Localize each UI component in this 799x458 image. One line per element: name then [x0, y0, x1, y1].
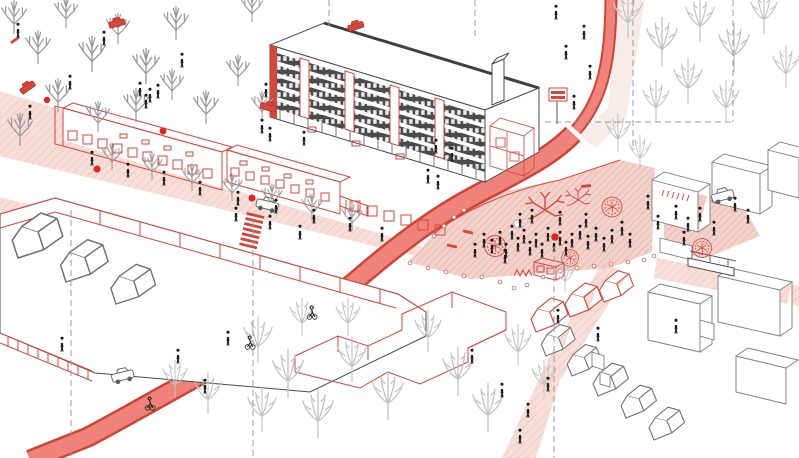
bollard — [498, 280, 502, 284]
bollard — [462, 274, 466, 278]
leafy-tree — [713, 80, 739, 122]
axonometric-illustration — [0, 0, 799, 458]
illustration-canvas — [0, 0, 799, 458]
pavilion-1-shopfronts-part — [68, 131, 77, 140]
person — [264, 83, 267, 98]
bollard — [426, 266, 430, 270]
person — [596, 327, 599, 342]
red-car — [346, 19, 364, 32]
leafy-tree — [751, 0, 777, 34]
pavilion-2-shopfronts-part — [284, 174, 291, 178]
pavilion-1-shopfronts-part — [98, 139, 107, 148]
pavilion-1-shopfronts-part — [186, 152, 193, 156]
person — [180, 53, 183, 68]
person — [470, 349, 473, 364]
pavilion-2-shopfronts-part — [262, 167, 269, 171]
person — [564, 45, 567, 60]
slab-red-balconies-part — [390, 85, 399, 146]
pavilion-2-shopfronts-part — [306, 180, 313, 184]
red-sign-part — [551, 96, 565, 99]
bollard — [592, 264, 596, 268]
bollard — [652, 254, 656, 258]
pavilion-2-shopfronts-part — [291, 185, 299, 193]
house — [617, 382, 659, 418]
bollard — [462, 208, 466, 212]
leafy-tree — [647, 17, 678, 66]
marker-dot — [44, 97, 50, 103]
leafy-tree — [505, 324, 531, 366]
bollard — [512, 286, 516, 290]
bollard — [444, 270, 448, 274]
person — [554, 5, 557, 20]
leafy-tree — [719, 23, 750, 72]
bare-tree — [54, 0, 77, 28]
pergola-frames-part — [401, 215, 411, 225]
bollard — [541, 275, 545, 279]
southeast-blocks-part — [700, 320, 714, 340]
leafy-tree — [303, 389, 334, 438]
pavilion-2-shopfronts-part — [321, 193, 329, 201]
southeast-blocks — [648, 268, 798, 404]
pavilion-1-shopfronts-part — [142, 140, 149, 144]
leafy-tree — [248, 387, 277, 433]
house — [645, 404, 687, 440]
bare-tree — [1, 0, 26, 34]
pavilion-2-shopfronts-part — [276, 180, 284, 188]
pavilion-1-shopfronts-part — [83, 135, 92, 144]
bollard — [452, 215, 456, 219]
bare-tree — [86, 101, 109, 132]
marker-dot — [94, 166, 101, 173]
pavilion-2-shopfronts-part — [240, 161, 247, 165]
bollard — [408, 261, 412, 265]
bare-tree — [79, 36, 106, 72]
leafy-tree — [773, 46, 799, 88]
pavilion-1-shopfronts-part — [173, 160, 182, 169]
slab-red-balconies-part — [345, 71, 354, 132]
bollard — [525, 283, 529, 287]
marker-dot — [249, 195, 256, 202]
pavilion-1-shopfronts-part — [120, 134, 127, 138]
pavilion-1-shopfronts-part — [164, 146, 171, 150]
bare-tree — [241, 0, 263, 22]
bollard — [480, 275, 484, 279]
leafy-tree — [473, 383, 504, 432]
leafy-tree — [674, 59, 703, 105]
person — [102, 31, 105, 46]
red-car — [18, 78, 36, 94]
person — [16, 23, 19, 38]
slab-chimney-part — [492, 59, 504, 105]
slab-red-balconies-part — [300, 58, 309, 119]
pavilion-1-shopfronts-part — [128, 148, 137, 157]
leafy-tree — [643, 80, 669, 122]
bare-tree — [163, 6, 188, 40]
northeast-blocks-part — [768, 142, 799, 198]
pergola-frames-part — [384, 211, 394, 221]
marker-dot — [551, 233, 559, 241]
bollard — [626, 260, 630, 264]
bollard — [432, 234, 436, 238]
bollard — [575, 266, 579, 270]
leafy-tree — [686, 0, 715, 42]
bollard — [609, 262, 613, 266]
bollard — [442, 224, 446, 228]
pavilion-2-shopfronts-part — [246, 172, 254, 180]
red-car — [108, 16, 126, 28]
bollard — [642, 258, 646, 262]
southeast-blocks-part — [736, 348, 798, 404]
marker-dot — [160, 128, 167, 135]
red-sign-part — [551, 91, 565, 94]
southeast-blocks-part — [648, 284, 712, 352]
pavilion-2-shopfronts-part — [261, 176, 269, 184]
